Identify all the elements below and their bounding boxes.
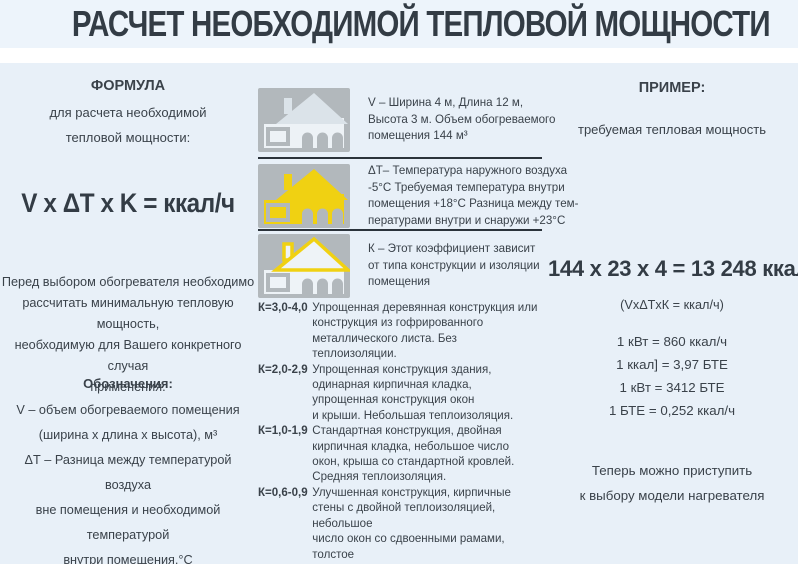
- example-heading: ПРИМЕР:: [548, 80, 796, 96]
- coefficient-description: Улучшенная конструкция, кирпичные стены …: [312, 485, 542, 564]
- house-coefficient-icon: [258, 234, 350, 298]
- formula-subheading: для расчета необходимой тепловой мощност…: [0, 100, 256, 150]
- row-separator: [258, 229, 542, 231]
- unit-conversions: 1 кВт = 860 ккал/ч 1 ккал] = 3,97 БТЕ 1 …: [548, 330, 796, 422]
- formula-equation: V x ΔT x K = ккал/ч: [13, 188, 243, 219]
- legend-heading: Обозначения:: [0, 376, 256, 391]
- coefficient-list: К=3,0-4,0 Упрощенная деревянная конструк…: [258, 300, 543, 564]
- coefficient-label: К=1,0-1,9: [258, 423, 308, 438]
- coefficient-label: К=3,0-4,0: [258, 300, 308, 315]
- coefficient-row-text: К – Этот коэффициент зависит от типа кон…: [368, 240, 545, 290]
- coefficient-label: К=2,0-2,9: [258, 362, 308, 377]
- volume-row-text: V – Ширина 4 м, Длина 12 м, Высота 3 м. …: [368, 94, 545, 144]
- page-title: РАСЧЕТ НЕОБХОДИМОЙ ТЕПЛОВОЙ МОЩНОСТИ: [72, 3, 726, 45]
- example-subheading: требуемая тепловая мощность: [548, 122, 796, 137]
- temperature-row-text: ΔТ– Температура наружного воздуха -5°С Т…: [368, 162, 545, 228]
- coefficient-item: К=1,0-1,9 Стандартная конструкция, двойн…: [258, 423, 543, 485]
- house-temperature-icon: [258, 164, 350, 228]
- row-separator: [258, 157, 542, 159]
- coefficient-description: Упрощенная деревянная конструкция или ко…: [312, 300, 542, 362]
- coefficient-item: К=2,0-2,9 Упрощенная конструкция здания,…: [258, 362, 543, 424]
- coefficient-description: Упрощенная конструкция здания, одинарная…: [312, 362, 513, 424]
- coefficient-description: Стандартная конструкция, двойная кирпичн…: [312, 423, 514, 485]
- house-volume-icon: [258, 88, 350, 152]
- header-divider: [0, 48, 798, 63]
- footer-note: Теперь можно приступить к выбору модели …: [548, 458, 796, 508]
- example-calculation: 144 x 23 x 4 = 13 248 ккал/ч: [548, 256, 796, 282]
- legend-text: V – объем обогреваемого помещения (ширин…: [0, 398, 256, 564]
- example-formula-note: (VxΔТxК = ккал/ч): [548, 298, 796, 312]
- coefficient-item: К=3,0-4,0 Упрощенная деревянная конструк…: [258, 300, 543, 362]
- heat-power-infographic: РАСЧЕТ НЕОБХОДИМОЙ ТЕПЛОВОЙ МОЩНОСТИ ФОР…: [0, 0, 798, 564]
- coefficient-item: К=0,6-0,9 Улучшенная конструкция, кирпич…: [258, 485, 543, 564]
- formula-heading: ФОРМУЛА: [0, 78, 256, 94]
- coefficient-label: К=0,6-0,9: [258, 485, 308, 500]
